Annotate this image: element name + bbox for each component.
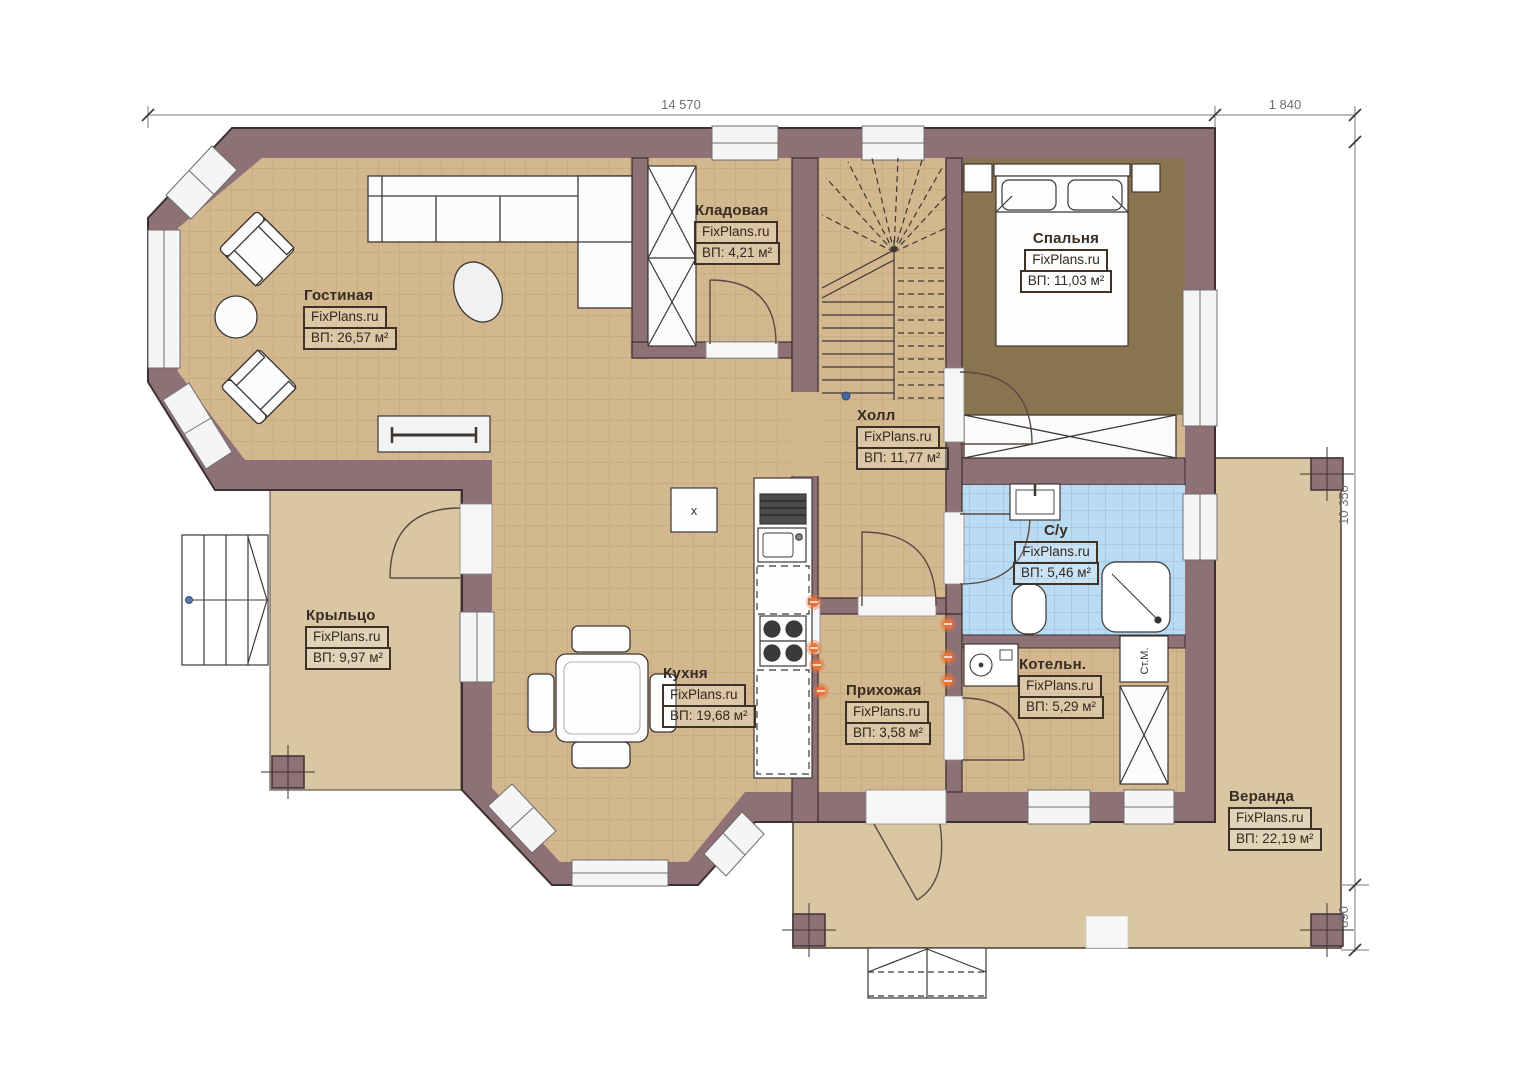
room-name: Холл [857,407,949,424]
pillow-left [1002,180,1056,210]
storage-wardrobe [648,166,696,346]
pillow-right [1068,180,1122,210]
chair-bottom [572,742,630,768]
room-label-entry-hall: Прихожая FixPlans.ru ВП: 3,58 м² [845,682,931,745]
area-box: ВП: 9,97 м² [305,647,391,670]
room-label-storage: Кладовая FixPlans.ru ВП: 4,21 м² [694,202,780,265]
porch-steps [182,535,268,665]
brand-box: FixPlans.ru [694,221,778,244]
area-box: ВП: 19,68 м² [662,705,756,728]
room-label-bedroom: Спальня FixPlans.ru ВП: 11,03 м² [1008,230,1124,293]
room-name: Прихожая [846,682,931,699]
room-label-porch: Крыльцо FixPlans.ru ВП: 9,97 м² [305,607,391,670]
nightstand-right [1132,164,1160,192]
brand-box: FixPlans.ru [1228,807,1312,830]
kitchen-appliance-label: x [691,503,698,518]
brand-box: FixPlans.ru [303,306,387,329]
brand-box: FixPlans.ru [856,426,940,449]
bed-headboard [994,164,1130,176]
dimension-right-bottom: 890 [1336,906,1351,928]
dining-table [556,654,648,742]
washing-machine-label: Ст.М. [1139,647,1151,674]
brand-box: FixPlans.ru [1018,675,1102,698]
room-label-veranda: Веранда FixPlans.ru ВП: 22,19 м² [1228,788,1322,851]
side-table [215,296,257,338]
floor-plan-drawing: 14 570 1 840 10 350 890 x Ст.М. [0,0,1528,1080]
room-label-hall: Холл FixPlans.ru ВП: 11,77 м² [856,407,949,470]
dimension-top-main: 14 570 [661,97,701,112]
brand-box: FixPlans.ru [1014,541,1098,564]
nightstand-left [964,164,992,192]
area-box: ВП: 26,57 м² [303,327,397,350]
area-box: ВП: 3,58 м² [845,722,931,745]
room-name: Гостиная [304,287,397,304]
area-box: ВП: 4,21 м² [694,242,780,265]
area-box: ВП: 22,19 м² [1228,828,1322,851]
toilet [1012,584,1046,634]
veranda-floor-marker [1086,916,1128,948]
brand-box: FixPlans.ru [662,684,746,707]
room-name: Спальня [1033,230,1099,247]
floor-plan-canvas: 14 570 1 840 10 350 890 x Ст.М. Гостиная… [0,0,1528,1080]
area-box: ВП: 5,46 м² [1013,562,1099,585]
area-box: ВП: 5,29 м² [1018,696,1104,719]
room-label-boiler-room: Котельн. FixPlans.ru ВП: 5,29 м² [1018,656,1104,719]
chair-left [528,674,554,732]
room-name: Веранда [1229,788,1322,805]
room-name: С/у [1044,522,1068,539]
room-name: Кухня [663,665,756,682]
chair-top [572,626,630,652]
room-name: Крыльцо [306,607,391,624]
veranda-steps [868,948,986,998]
area-box: ВП: 11,77 м² [856,447,949,470]
bedroom-wardrobe [964,415,1176,458]
brand-box: FixPlans.ru [845,701,929,724]
dimension-right-main: 10 350 [1336,485,1351,525]
room-label-kitchen: Кухня FixPlans.ru ВП: 19,68 м² [662,665,756,728]
area-box: ВП: 11,03 м² [1020,270,1113,293]
brand-box: FixPlans.ru [305,626,389,649]
brand-box: FixPlans.ru [1024,249,1108,272]
room-name: Кладовая [695,202,780,219]
room-label-bathroom: С/у FixPlans.ru ВП: 5,46 м² [1004,522,1108,585]
room-name: Котельн. [1019,656,1104,673]
room-label-living-room: Гостиная FixPlans.ru ВП: 26,57 м² [303,287,397,350]
kitchen-hood [760,494,806,524]
bedroom-bathroom-wall [962,458,1185,485]
dimension-top-right: 1 840 [1269,97,1302,112]
